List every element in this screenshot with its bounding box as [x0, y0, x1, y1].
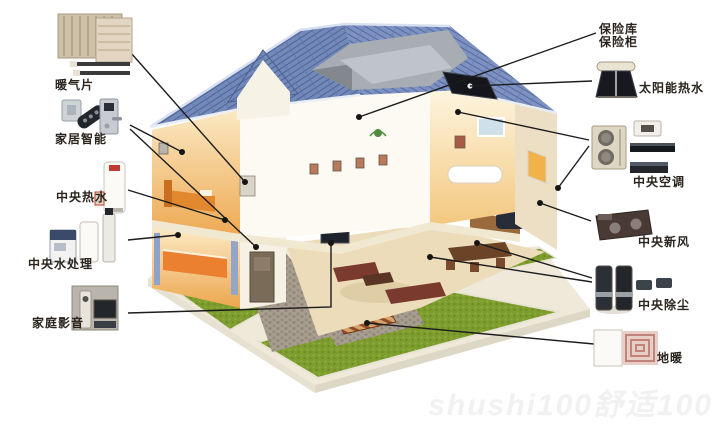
water-treatment-units-icon [50, 208, 115, 262]
solar-water-heater-icon [596, 62, 637, 97]
label-central-dust-removal: 中央除尘 [638, 299, 690, 312]
label-safe: 保险库 保险柜 [599, 23, 638, 49]
house-illustration [0, 0, 717, 426]
label-smart-home: 家居智能 [55, 133, 107, 146]
ac-outdoor-indoor-units-icon [592, 121, 675, 173]
label-safe-line2: 保险柜 [599, 36, 638, 49]
diagram-canvas: 暖气片 家居智能 中央热水 中央水处理 家庭影音 保险库 保险柜 太阳能热水 中… [0, 0, 717, 426]
label-central-ac: 中央空调 [633, 176, 685, 189]
radiator-panels-icon [58, 14, 132, 76]
label-floor-heating: 地暖 [657, 352, 683, 365]
label-solar-hot-water: 太阳能热水 [639, 82, 704, 95]
label-radiator: 暖气片 [55, 79, 94, 92]
label-central-fresh-air: 中央新风 [638, 236, 690, 249]
floor-heating-coil-icon [594, 330, 658, 366]
watermark: shushi100舒适100 [428, 380, 713, 424]
label-home-av: 家庭影音 [32, 317, 84, 330]
label-central-water-treatment: 中央水处理 [28, 258, 93, 271]
water-heater-tank-icon [95, 162, 125, 213]
label-central-hot-water: 中央热水 [56, 191, 108, 204]
smart-lock-remote-icon [62, 99, 122, 134]
